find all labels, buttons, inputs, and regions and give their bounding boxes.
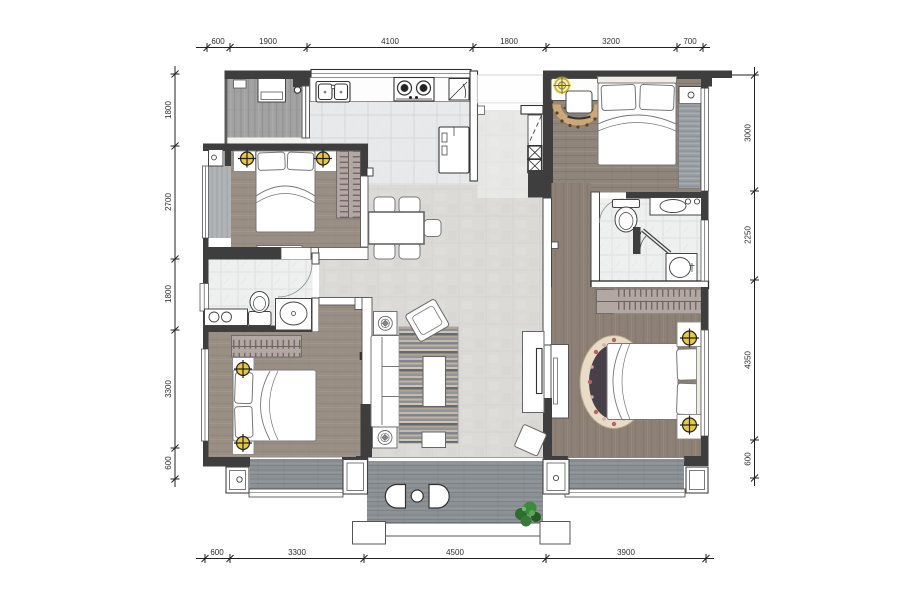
svg-text:3300: 3300 <box>164 380 173 398</box>
svg-text:1900: 1900 <box>259 37 277 46</box>
svg-text:1800: 1800 <box>164 285 173 303</box>
svg-text:600: 600 <box>211 37 225 46</box>
svg-text:4350: 4350 <box>744 351 753 369</box>
svg-text:700: 700 <box>683 37 697 46</box>
svg-text:600: 600 <box>210 548 224 557</box>
svg-text:600: 600 <box>744 452 753 466</box>
svg-text:3000: 3000 <box>744 124 753 142</box>
svg-text:4100: 4100 <box>381 37 399 46</box>
svg-text:4500: 4500 <box>446 548 464 557</box>
svg-text:1800: 1800 <box>500 37 518 46</box>
svg-text:2700: 2700 <box>164 193 173 211</box>
svg-text:600: 600 <box>164 456 173 470</box>
svg-text:1800: 1800 <box>164 101 173 119</box>
svg-text:3900: 3900 <box>617 548 635 557</box>
svg-text:3300: 3300 <box>288 548 306 557</box>
svg-text:2250: 2250 <box>744 226 753 244</box>
svg-text:3200: 3200 <box>602 37 620 46</box>
